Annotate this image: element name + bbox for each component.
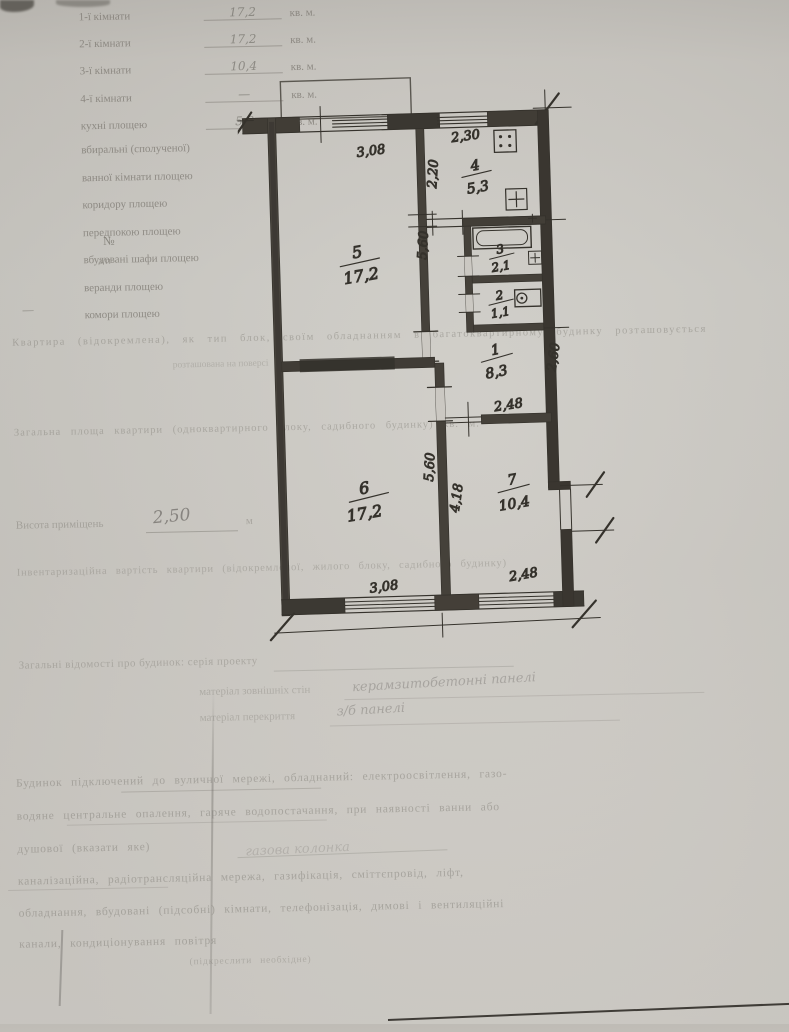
room-number: 4 (468, 157, 480, 174)
form-row: 1-ї кімнати17,2кв. м. (78, 2, 378, 23)
height-label: Висота приміщень (16, 518, 104, 532)
dim-room7-width: 2,48 (507, 565, 539, 585)
room-number: 3 (495, 242, 505, 257)
room-area: 17,2 (345, 501, 383, 526)
paragraph-line: каналізаційна, радіотрансляційна мережа,… (18, 860, 789, 887)
room-label-7: 7 10,4 (494, 470, 534, 515)
bath-sink-icon (528, 251, 541, 264)
floor-plan: 5 17,2 4 5,3 3 2,1 2 1,1 1 (236, 66, 625, 649)
room-number: 6 (358, 478, 371, 498)
window-icon (345, 599, 435, 609)
bottom-wall (282, 591, 584, 615)
stove-icon (494, 130, 517, 153)
slab-material-value: з/б панелі (336, 701, 405, 720)
walls-material-label: матеріал зовнішніх стін (199, 684, 310, 698)
row-label: кухні площею (81, 118, 206, 133)
balcony-door-opening (560, 489, 572, 529)
scan-smudge (56, 0, 110, 7)
general-info-line: Загальні відомості про будинок: серія пр… (19, 655, 258, 672)
paragraph-line: Будинок підключений до вуличної мережі, … (16, 762, 788, 789)
dim-kitchen-width: 2,30 (449, 127, 481, 146)
scanned-form: № з/п — 1-ї кімнати17,2кв. м. 2-ї кімнат… (0, 0, 789, 1032)
dim-top: 3,08 (356, 142, 387, 161)
form-row: 2-ї кімнати17,2кв. м. (79, 29, 379, 50)
row-value: 10,4 (205, 58, 283, 75)
room-area: 1,1 (490, 304, 511, 321)
room-number: 2 (494, 288, 505, 303)
dim-kitchen-height: 2,20 (425, 159, 442, 190)
room-label-2: 2 1,1 (486, 286, 516, 321)
room-number: 5 (350, 242, 363, 262)
dim-room5-height: 5,60 (415, 230, 432, 260)
window-icon (437, 116, 487, 124)
dim-hall-height: 2,60 (544, 342, 563, 374)
row-value: 17,2 (204, 31, 282, 48)
paragraph-line: водяне центральне опалення, гаряче водоп… (17, 795, 789, 822)
row-label: 2-ї кімнати (79, 36, 204, 51)
partition-wc-hall (474, 323, 544, 332)
room-area: 8,3 (484, 363, 509, 383)
row-unit: кв. м. (290, 34, 316, 47)
dim-room6-width: 3,08 (369, 578, 400, 597)
partition-kitchen-bottom (426, 208, 546, 236)
margin-dash: — (22, 304, 33, 316)
partition-room5-room6 (282, 355, 435, 373)
dim-hall-width: 2,48 (492, 396, 524, 415)
row-label: 3-ї кімнати (80, 63, 205, 78)
window-icon (479, 596, 554, 605)
kitchen-sink-icon (506, 188, 528, 210)
window-icon (332, 119, 387, 127)
room-area: 5,3 (466, 178, 491, 198)
room-area: 10,4 (498, 494, 531, 515)
room-label-4: 4 5,3 (459, 156, 495, 199)
paragraph-line: канали, кондиціонування повітря (19, 923, 789, 950)
room-label-5: 5 17,2 (337, 239, 384, 288)
walls-material-value: керамзитобетонні панелі (352, 670, 536, 695)
row-unit: кв. м. (291, 61, 317, 74)
dim-room7-height: 4,18 (448, 483, 467, 515)
room-area: 2,1 (489, 258, 511, 275)
room-label-6: 6 17,2 (341, 475, 393, 526)
row-label: 1-ї кімнати (79, 9, 204, 24)
row-unit: кв. м. (289, 7, 315, 20)
paragraph-line: обладнання, вбудовані (підсобні) кімнати… (19, 892, 789, 919)
room-label-1: 1 8,3 (478, 340, 516, 383)
toilet-icon (515, 289, 541, 307)
balcony-outline (280, 78, 411, 120)
room-number: 7 (507, 471, 519, 488)
paragraph-footnote: (підкреслити необхідне) (190, 951, 490, 967)
dim-room6-height: 5,60 (422, 452, 439, 482)
partition-bath-wc (472, 274, 542, 283)
room-area: 17,2 (342, 263, 380, 288)
height-value-handwritten: 2,50 (152, 505, 192, 528)
row-value: 17,2 (203, 4, 281, 21)
row-label: 4-ї кімнати (80, 91, 205, 106)
